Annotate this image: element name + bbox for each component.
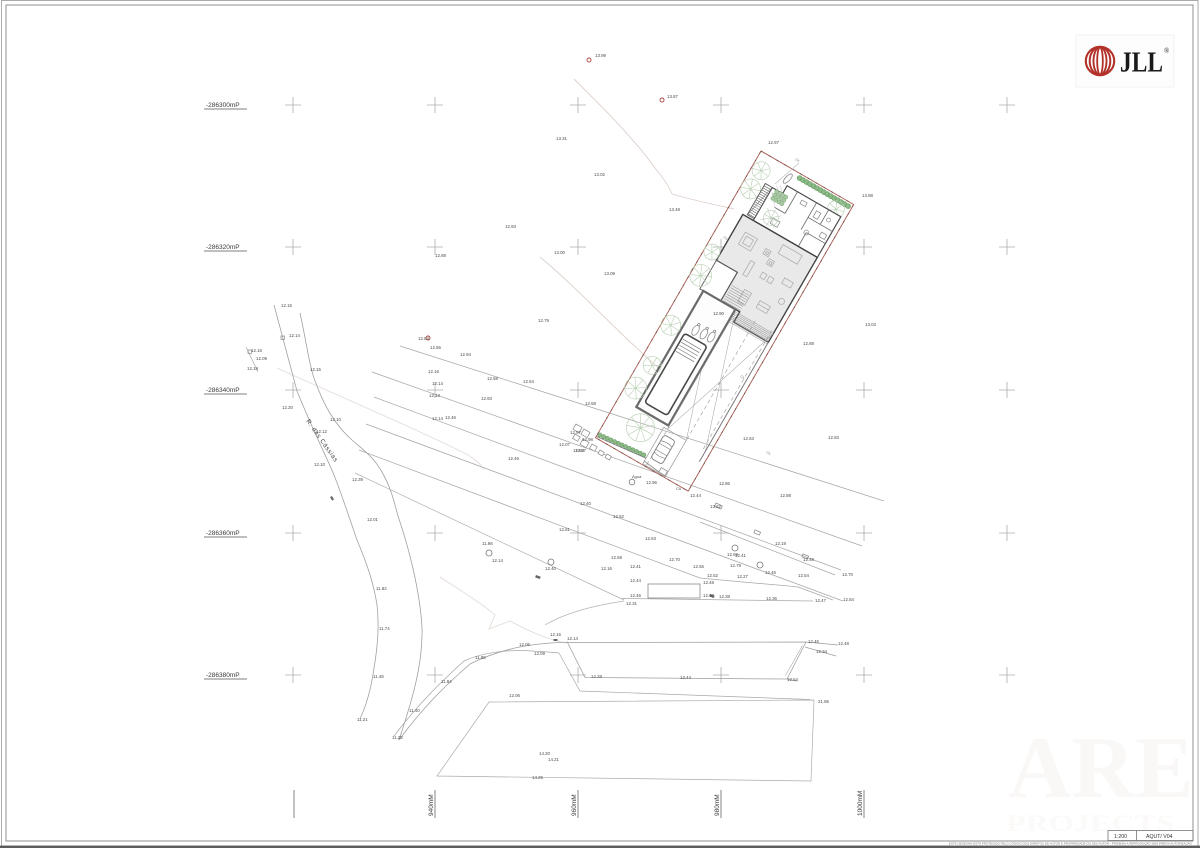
svg-text:12.40: 12.40 xyxy=(545,566,557,571)
svg-text:11.85: 11.85 xyxy=(475,655,486,660)
svg-text:12.47: 12.47 xyxy=(703,593,715,598)
svg-text:12.98: 12.98 xyxy=(582,437,594,442)
svg-text:12.79: 12.79 xyxy=(730,563,742,568)
svg-text:11.21: 11.21 xyxy=(357,717,368,722)
svg-text:13.87: 13.87 xyxy=(667,94,679,99)
svg-text:12.09: 12.09 xyxy=(256,356,268,361)
svg-text:12.34: 12.34 xyxy=(816,649,828,654)
svg-text:CA: CA xyxy=(676,487,682,491)
svg-text:12.55: 12.55 xyxy=(693,564,705,569)
svg-text:11.40: 11.40 xyxy=(409,708,420,713)
svg-text:12.70: 12.70 xyxy=(669,557,681,562)
svg-text:12.52: 12.52 xyxy=(613,514,625,519)
svg-text:12.46: 12.46 xyxy=(445,415,457,420)
svg-text:1000mM: 1000mM xyxy=(857,791,864,816)
svg-text:12.36: 12.36 xyxy=(766,596,778,601)
svg-text:1:200: 1:200 xyxy=(1114,834,1127,840)
svg-text:12.09: 12.09 xyxy=(534,651,546,656)
svg-text:JLL: JLL xyxy=(1120,47,1163,79)
svg-text:12.46: 12.46 xyxy=(508,456,520,461)
svg-text:12.86: 12.86 xyxy=(719,481,731,486)
svg-text:12.54: 12.54 xyxy=(523,379,535,384)
svg-text:12.05: 12.05 xyxy=(519,642,531,647)
svg-text:12.41: 12.41 xyxy=(630,564,642,569)
svg-text:12.16: 12.16 xyxy=(251,348,263,353)
svg-text:14.20: 14.20 xyxy=(539,751,551,756)
svg-text:12.90: 12.90 xyxy=(713,311,725,316)
svg-text:13.09: 13.09 xyxy=(604,271,616,276)
svg-text:12.56: 12.56 xyxy=(430,345,442,350)
svg-text:12.41: 12.41 xyxy=(735,553,747,558)
svg-text:12.84: 12.84 xyxy=(843,597,855,602)
svg-text:12.15: 12.15 xyxy=(310,367,322,372)
svg-text:ESTE DESENHO ESTÁ PROTEGIDO PE: ESTE DESENHO ESTÁ PROTEGIDO PELO CÓDIGO … xyxy=(949,841,1193,846)
svg-text:12.54: 12.54 xyxy=(787,677,799,682)
svg-text:940mM: 940mM xyxy=(428,794,435,816)
svg-text:12.19: 12.19 xyxy=(775,541,787,546)
svg-text:ARE: ARE xyxy=(1008,720,1194,817)
svg-text:12.63: 12.63 xyxy=(743,436,755,441)
svg-text:12.13: 12.13 xyxy=(429,393,441,398)
svg-text:12.83: 12.83 xyxy=(828,435,840,440)
svg-text:12.63: 12.63 xyxy=(645,536,657,541)
svg-text:12.14: 12.14 xyxy=(492,558,504,563)
svg-text:12.88: 12.88 xyxy=(435,253,447,258)
svg-text:-286340mP: -286340mP xyxy=(206,387,240,394)
svg-text:®: ® xyxy=(1164,47,1170,55)
svg-text:13.02: 13.02 xyxy=(594,172,606,177)
svg-text:13.00: 13.00 xyxy=(554,250,566,255)
svg-text:12.46: 12.46 xyxy=(630,593,642,598)
svg-text:12.87: 12.87 xyxy=(575,448,587,453)
svg-text:11.84: 11.84 xyxy=(441,679,452,684)
svg-text:21.86: 21.86 xyxy=(818,699,830,704)
svg-text:12.93: 12.93 xyxy=(481,396,493,401)
svg-text:12.58: 12.58 xyxy=(611,555,623,560)
svg-text:-286380mP: -286380mP xyxy=(206,672,240,679)
svg-text:PROJECTS: PROJECTS xyxy=(1006,811,1174,836)
svg-text:12.07: 12.07 xyxy=(559,442,571,447)
svg-text:12.79: 12.79 xyxy=(538,318,550,323)
svg-text:AQUT/ V04: AQUT/ V04 xyxy=(1146,834,1173,840)
svg-text:12.58: 12.58 xyxy=(487,376,499,381)
svg-text:11.82: 11.82 xyxy=(376,586,387,591)
svg-text:12.28: 12.28 xyxy=(591,674,603,679)
svg-text:11.74: 11.74 xyxy=(379,626,390,631)
svg-text:12.14: 12.14 xyxy=(432,416,444,421)
svg-text:13.62: 13.62 xyxy=(710,504,722,509)
svg-text:11.98: 11.98 xyxy=(482,541,493,546)
svg-text:-286360mP: -286360mP xyxy=(206,530,240,537)
svg-text:Água: Água xyxy=(632,474,642,479)
svg-text:13.03: 13.03 xyxy=(865,322,877,327)
svg-text:12.44: 12.44 xyxy=(630,578,642,583)
svg-text:12.38: 12.38 xyxy=(719,594,731,599)
svg-text:12.31: 12.31 xyxy=(626,601,638,606)
svg-text:12.12: 12.12 xyxy=(316,429,328,434)
svg-text:12.45: 12.45 xyxy=(808,639,820,644)
svg-text:960mM: 960mM xyxy=(571,794,578,816)
svg-text:12.68: 12.68 xyxy=(585,401,597,406)
svg-text:12.44: 12.44 xyxy=(680,675,692,680)
svg-text:12.16: 12.16 xyxy=(550,632,562,637)
svg-text:12.97: 12.97 xyxy=(768,140,780,145)
svg-text:12.70: 12.70 xyxy=(842,572,854,577)
svg-text:13.88: 13.88 xyxy=(862,193,874,198)
svg-text:12.10: 12.10 xyxy=(330,417,342,422)
svg-text:980mM: 980mM xyxy=(714,794,721,816)
svg-text:12.88: 12.88 xyxy=(780,493,792,498)
svg-text:12.06: 12.06 xyxy=(509,693,521,698)
svg-text:12.39: 12.39 xyxy=(352,477,364,482)
svg-text:12.94: 12.94 xyxy=(460,352,472,357)
svg-text:13.48: 13.48 xyxy=(669,207,681,212)
svg-text:12.48: 12.48 xyxy=(838,641,850,646)
svg-text:12.27: 12.27 xyxy=(737,574,749,579)
svg-text:12.96: 12.96 xyxy=(646,480,658,485)
svg-text:13.31: 13.31 xyxy=(556,136,568,141)
svg-text:12.10: 12.10 xyxy=(314,462,326,467)
svg-text:12.14: 12.14 xyxy=(289,333,301,338)
svg-text:12.14: 12.14 xyxy=(567,636,579,641)
svg-text:11.28: 11.28 xyxy=(392,735,403,740)
svg-text:12.20: 12.20 xyxy=(282,405,294,410)
svg-text:12.88: 12.88 xyxy=(803,341,815,346)
svg-text:12.47: 12.47 xyxy=(815,598,827,603)
svg-text:12.01: 12.01 xyxy=(367,517,379,522)
svg-text:12.48: 12.48 xyxy=(703,580,715,585)
svg-text:12.54: 12.54 xyxy=(798,573,810,578)
svg-text:12.84: 12.84 xyxy=(418,336,430,341)
svg-text:-286300mP: -286300mP xyxy=(206,102,240,109)
svg-text:-286320mP: -286320mP xyxy=(206,244,240,251)
svg-text:12.97: 12.97 xyxy=(570,430,582,435)
svg-text:14.21: 14.21 xyxy=(548,757,560,762)
svg-text:12.18: 12.18 xyxy=(247,366,259,371)
svg-text:12.46: 12.46 xyxy=(765,570,777,575)
svg-text:12.15: 12.15 xyxy=(281,303,293,308)
svg-text:12.48: 12.48 xyxy=(803,557,815,562)
svg-text:14.25: 14.25 xyxy=(532,775,544,780)
svg-text:11.48: 11.48 xyxy=(373,674,384,679)
svg-text:12.52: 12.52 xyxy=(707,573,719,578)
svg-text:12.61: 12.61 xyxy=(559,527,571,532)
svg-text:12.40: 12.40 xyxy=(580,501,592,506)
svg-text:13.99: 13.99 xyxy=(595,53,607,58)
svg-text:12.14: 12.14 xyxy=(432,381,444,386)
svg-text:12.16: 12.16 xyxy=(601,566,613,571)
svg-text:12.44: 12.44 xyxy=(690,493,702,498)
svg-text:12.93: 12.93 xyxy=(505,224,517,229)
svg-text:12.16: 12.16 xyxy=(428,369,440,374)
